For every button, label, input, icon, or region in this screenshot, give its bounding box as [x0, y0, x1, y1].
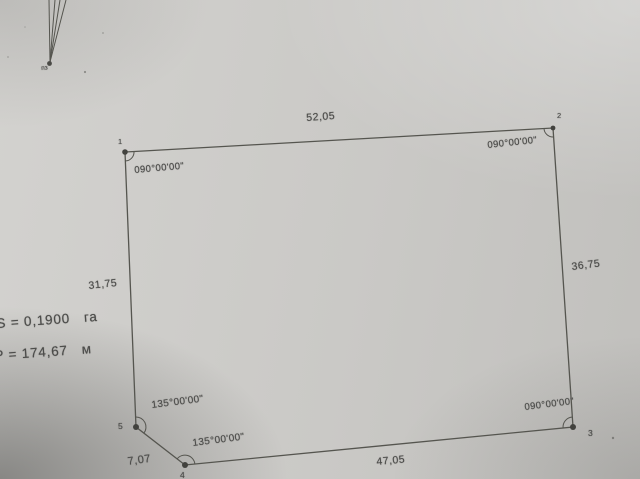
vertex-dot-2	[551, 126, 556, 131]
vertex-number-3: 3	[588, 429, 593, 438]
benchmark-rays-icon	[49, 0, 66, 62]
side-length-bottom: 47,05	[376, 454, 406, 467]
vertex-dot-5	[133, 424, 139, 430]
vertex-number-5: 5	[118, 422, 123, 431]
vertex-dot-3	[570, 424, 576, 430]
vertex-dot-1	[122, 149, 128, 155]
vertex-number-1: 1	[118, 138, 122, 146]
side-length-top: 52,05	[306, 111, 335, 123]
survey-plan-photo: пз 52,05 36,75 31,75 47,05 7,07 090°00'0…	[0, 0, 640, 479]
area-unit: га	[83, 309, 98, 325]
benchmark-label: пз	[41, 65, 48, 72]
perimeter-unit: м	[81, 341, 92, 357]
parcel-outline	[125, 128, 573, 465]
vertex-number-2: 2	[557, 112, 561, 120]
angle-arcs	[125, 129, 572, 465]
vertex-dot-4	[182, 462, 188, 468]
paper-specks	[7, 26, 614, 439]
vertex-dots	[122, 126, 576, 468]
vertex-number-4: 4	[180, 471, 185, 479]
